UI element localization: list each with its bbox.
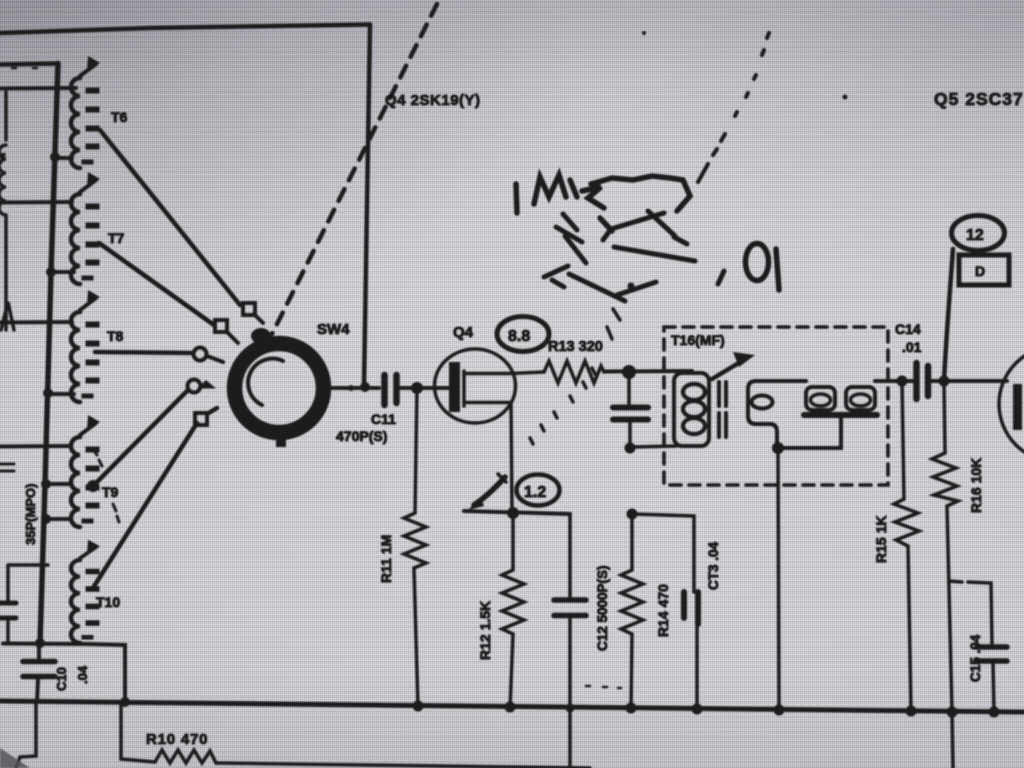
svg-text:R16 10K: R16 10K [968,458,984,513]
svg-text:C10: C10 [54,667,69,691]
svg-text:C12 5000P(S): C12 5000P(S) [595,565,610,651]
svg-text:470P(S): 470P(S) [336,428,387,444]
svg-text:T7: T7 [108,230,125,246]
svg-text:T16(MF): T16(MF) [671,332,725,348]
svg-text:Q4: Q4 [453,324,474,341]
svg-text:C15 .04: C15 .04 [968,634,983,682]
svg-text:T9: T9 [102,484,119,500]
svg-text:Q4 2SK19(Y): Q4 2SK19(Y) [385,92,481,109]
svg-text:C14: C14 [895,321,921,337]
svg-text:35P(MPO): 35P(MPO) [23,484,38,545]
svg-text:1.2: 1.2 [524,484,546,501]
svg-text:D: D [975,263,985,279]
svg-text:C11: C11 [371,411,396,427]
svg-text:.04: .04 [75,665,90,684]
svg-text:8.8: 8.8 [508,328,530,345]
svg-text:T8: T8 [107,328,124,344]
svg-text:R12 1.5K: R12 1.5K [477,601,493,660]
svg-text:.01: .01 [902,339,922,355]
svg-text:R10 470: R10 470 [146,731,208,748]
svg-text:R15 1K: R15 1K [873,516,889,563]
svg-text:Q5 2SC37: Q5 2SC37 [934,89,1024,109]
svg-text:CT3 .04: CT3 .04 [706,541,721,590]
svg-text:SW4: SW4 [317,321,350,338]
svg-text:R11 1M: R11 1M [378,535,394,583]
svg-text:R13 320: R13 320 [548,339,603,355]
svg-text:R14 470: R14 470 [655,584,671,637]
svg-text:T10: T10 [96,594,120,610]
svg-text:12: 12 [966,227,984,244]
svg-text:T6: T6 [111,109,128,125]
